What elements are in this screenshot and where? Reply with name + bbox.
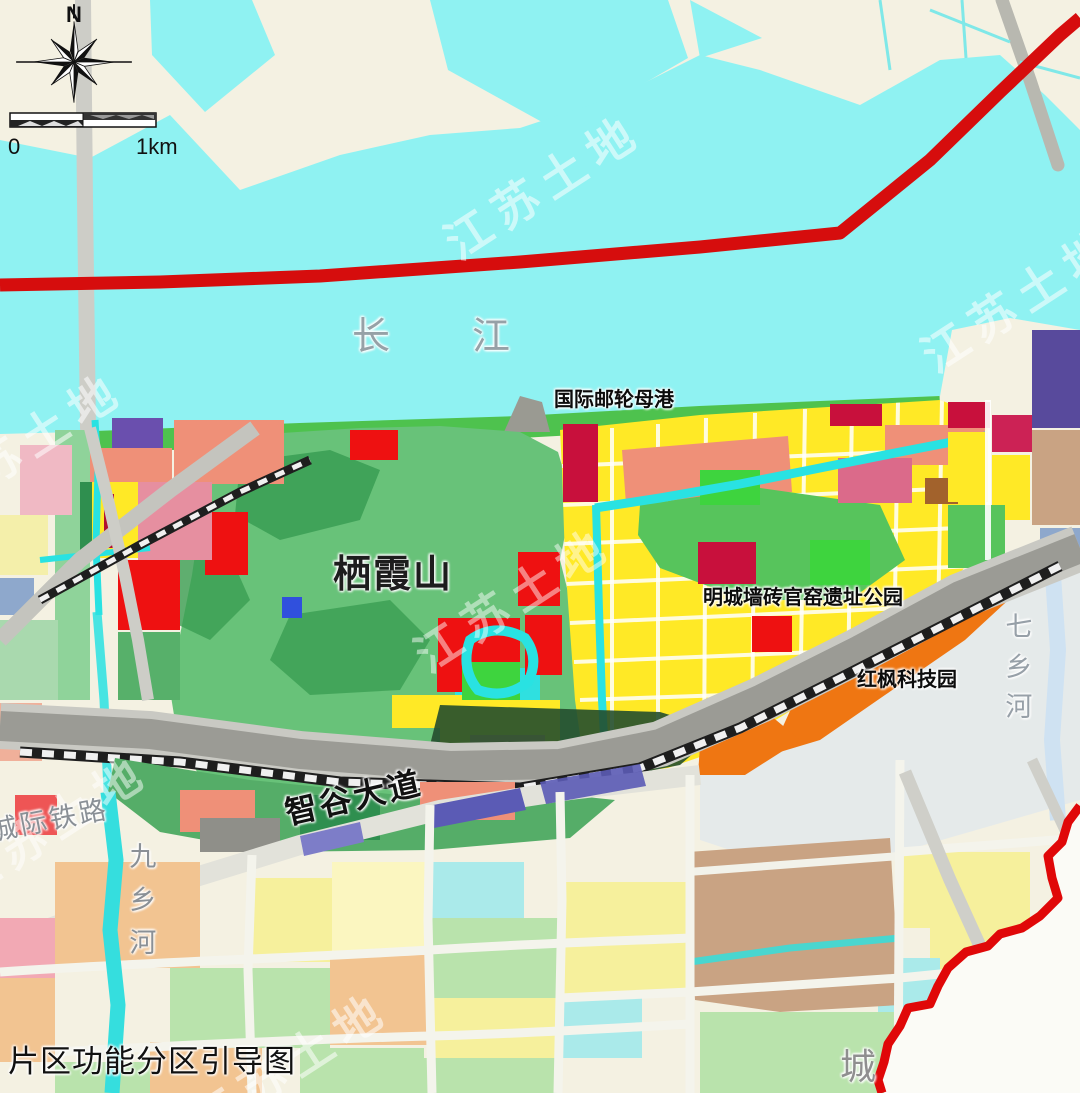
scale-start-label: 0	[8, 134, 20, 160]
zoning-map: 江苏土地 江苏土地 江苏土地 江苏土地 江苏土地 江苏土地 长江 国际邮轮母港 …	[0, 0, 1080, 1093]
scale-bar: 0 1km	[8, 112, 188, 160]
label-hongfeng-tech-park: 红枫科技园	[857, 670, 957, 691]
label-qixia-mountain: 栖霞山	[333, 556, 453, 596]
label-jiuxiang-river: 九乡河	[126, 842, 154, 971]
scale-bar-icon	[8, 112, 168, 132]
map-title: 片区功能分区引导图	[8, 1046, 296, 1079]
map-canvas	[0, 0, 1080, 1093]
label-yangtze-river: 长江	[352, 318, 592, 358]
compass-rose: N	[8, 4, 140, 116]
label-city-partial: 城	[840, 1048, 876, 1086]
qixiang-river-water	[1052, 560, 1058, 820]
label-cruise-port: 国际邮轮母港	[554, 390, 674, 411]
compass-north-label: N	[66, 2, 82, 28]
scale-end-label: 1km	[136, 134, 178, 160]
label-ming-kiln-park: 明城墙砖官窑遗址公园	[703, 588, 903, 609]
label-qixiang-river: 七乡河	[1002, 612, 1030, 732]
